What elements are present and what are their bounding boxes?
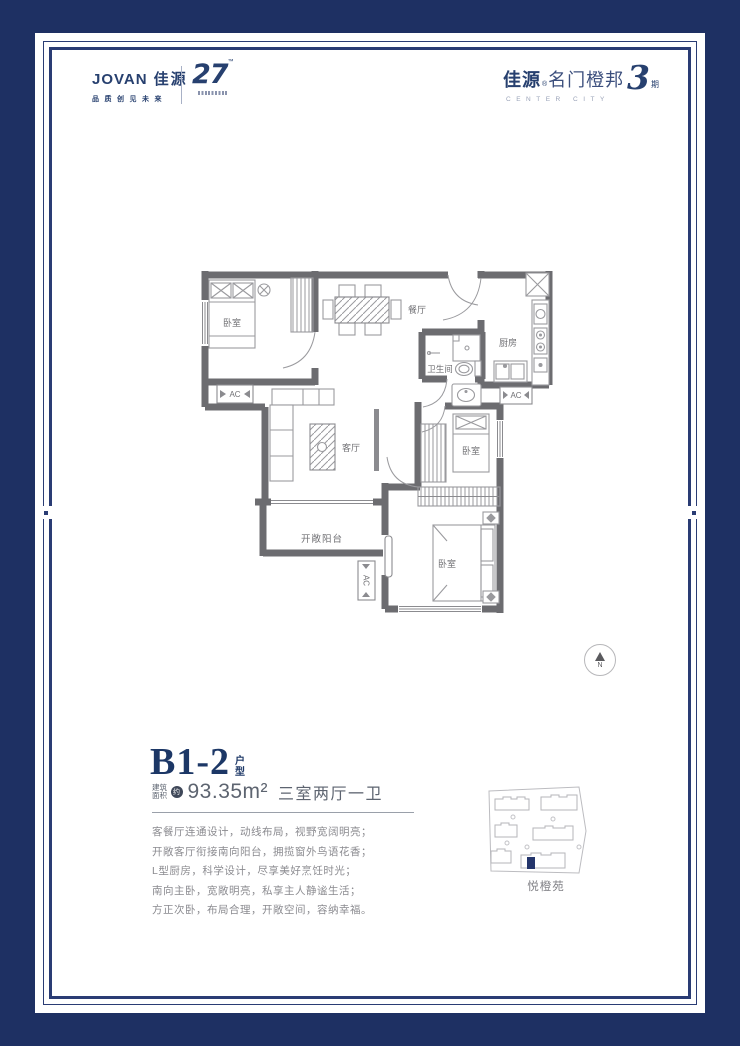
ac-label: AC — [362, 575, 371, 586]
divider-rule — [152, 812, 414, 813]
unit-code: B1-2 — [150, 743, 230, 781]
dining-set — [323, 285, 401, 335]
ac-unit-left: AC — [217, 385, 253, 403]
bedroom3-furniture — [385, 487, 500, 603]
project-name: 名门橙邦 — [548, 66, 624, 92]
kitchen-fixtures — [494, 273, 549, 385]
bedroom1-furniture — [209, 278, 313, 348]
description-line: 客餐厅连通设计，动线布局，视野宽阔明亮； — [152, 823, 372, 843]
dining-label: 餐厅 — [408, 304, 426, 315]
description-line: 方正次卧，布局合理，开敞空间，容纳幸福。 — [152, 901, 372, 921]
right-registration-notch — [686, 506, 702, 519]
unit-title: B1-2 户型 — [150, 743, 245, 781]
ac-unit-bottom: AC — [358, 561, 375, 600]
phase-number: 3 — [627, 61, 650, 94]
left-registration-notch — [38, 506, 54, 519]
unit-type-suffix: 户型 — [235, 757, 245, 778]
description-line: 南向主卧，宽敞明亮，私享主人静谧生活； — [152, 882, 372, 902]
jiayuan-wordmark: 佳源 — [154, 68, 188, 89]
bedroom1-label: 卧室 — [223, 317, 241, 328]
brand-slogan: 品质创见未来 — [92, 94, 188, 104]
poster-page: JOVAN 佳源 品质创见未来 27™ 佳源 ® 名门橙邦 CENTER CIT… — [35, 33, 705, 1013]
approx-circle: 约 — [171, 786, 183, 798]
ac-unit-right: AC — [500, 387, 532, 404]
floorplan-drawing: 卧室 餐厅 厨房 — [195, 258, 575, 618]
project-brand: 佳源 — [503, 66, 541, 92]
bedroom2-label: 卧室 — [462, 445, 480, 456]
area-label: 建筑面积 — [152, 784, 169, 801]
project-name-en: CENTER CITY — [506, 96, 624, 103]
unit-area-row: 建筑面积 约 93.35m² 三室两厅一卫 — [152, 780, 383, 804]
unit-description: 客餐厅连通设计，动线布局，视野宽阔明亮； 开敞客厅衔接南向阳台，拥揽窗外鸟语花香… — [152, 823, 372, 921]
bedroom3-label: 卧室 — [438, 558, 456, 569]
site-map-label: 悦橙苑 — [506, 878, 586, 894]
description-line: 开敞客厅衔接南向阳台，拥揽窗外鸟语花香； — [152, 843, 372, 863]
kitchen-label: 厨房 — [499, 337, 517, 348]
ac-label: AC — [229, 390, 240, 399]
logo-divider — [181, 66, 182, 104]
room-layout: 三室两厅一卫 — [278, 780, 383, 804]
project-logo: 佳源 ® 名门橙邦 CENTER CITY — [503, 66, 624, 103]
registered-mark: ® — [542, 81, 547, 88]
trademark-mark: ™ — [228, 59, 234, 65]
compass-n: N — [597, 662, 602, 669]
jovan-logo: JOVAN 佳源 品质创见未来 — [92, 68, 188, 104]
ac-label: AC — [510, 391, 521, 400]
jovan-wordmark: JOVAN — [92, 71, 148, 88]
site-buildings — [491, 795, 581, 868]
anniversary-microtext — [198, 91, 228, 95]
phase-unit: 期 — [651, 79, 659, 90]
highlighted-unit — [527, 857, 535, 869]
anniversary-logo: 27™ — [192, 59, 234, 95]
bathroom-label: 卫生间 — [427, 364, 453, 374]
anniversary-number: 27 — [192, 59, 228, 90]
compass-icon: N — [584, 644, 616, 676]
phase-logo: 3 期 — [627, 61, 659, 94]
living-label: 客厅 — [342, 442, 360, 453]
area-value: 93.35m² — [188, 780, 269, 804]
living-furniture — [270, 389, 379, 481]
balcony-label: 开敞阳台 — [301, 533, 343, 545]
compass-arrow — [595, 652, 605, 661]
site-map — [483, 781, 593, 881]
description-line: L型厨房，科学设计，尽享美好烹饪时光； — [152, 862, 372, 882]
floorplan-poster: { "brand": { "left": { "wordmark_en": "J… — [0, 0, 740, 1046]
